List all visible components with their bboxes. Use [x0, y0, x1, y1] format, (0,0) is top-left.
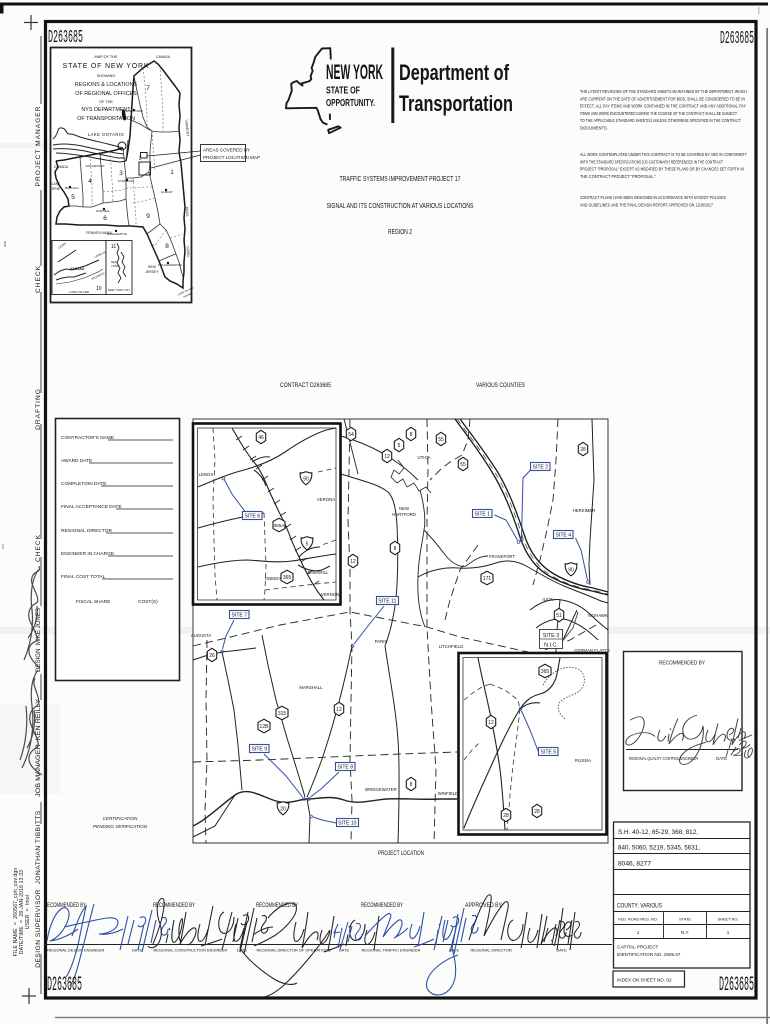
svg-text:SITE 6: SITE 6: [245, 514, 261, 520]
svg-text:8: 8: [410, 432, 413, 438]
svg-text:51: 51: [556, 613, 562, 619]
svg-text:CANADA: CANADA: [54, 165, 69, 169]
svg-text:POUGHKEEPSIE: POUGHKEEPSIE: [158, 263, 182, 267]
svg-text:RECOMMENDED BY: RECOMMENDED BY: [361, 902, 404, 909]
svg-text:COMPLETION DATE: COMPLETION DATE: [61, 481, 107, 487]
svg-text:FINAL COST TOTAL: FINAL COST TOTAL: [61, 574, 106, 580]
svg-text:BUFFALO: BUFFALO: [65, 186, 79, 190]
svg-text:DOCUMENTS.: DOCUMENTS.: [580, 126, 608, 131]
svg-text:TRAFFIC SYSTEMS IMPROVEMENT PR: TRAFFIC SYSTEMS IMPROVEMENT PROJECT 17: [340, 174, 461, 183]
svg-text:COUNTY: VARIOUS: COUNTY: VARIOUS: [617, 903, 662, 910]
svg-text:COST(S): COST(S): [138, 599, 158, 605]
svg-text:DATE: DATE: [716, 756, 727, 761]
svg-text:LAKE ONTARIO: LAKE ONTARIO: [88, 132, 125, 137]
svg-text:55: 55: [438, 437, 444, 443]
svg-text:PENDING VERIFICATION: PENDING VERIFICATION: [93, 824, 148, 829]
svg-text:N.Y.: N.Y.: [681, 930, 689, 935]
svg-text:CONN.: CONN.: [186, 246, 190, 257]
svg-text:54: 54: [348, 432, 354, 438]
svg-text:NEW YORK: NEW YORK: [326, 61, 383, 84]
svg-text:1: 1: [727, 930, 730, 935]
svg-text:PARIS: PARIS: [375, 639, 388, 644]
svg-text:OF TRANSPORTATION: OF TRANSPORTATION: [77, 116, 135, 122]
svg-text:12: 12: [384, 454, 390, 460]
svg-text:NEW YORK CITY: NEW YORK CITY: [108, 288, 130, 292]
svg-text:HARTFORD: HARTFORD: [392, 512, 416, 517]
svg-text:D263685: D263685: [47, 974, 82, 997]
svg-text:EFFECT. ALL PAY ITEMS AND WORK: EFFECT. ALL PAY ITEMS AND WORK CONTAINED…: [580, 104, 747, 109]
svg-text:PROJECT "PROPOSAL" EXCEPT AS M: PROJECT "PROPOSAL" EXCEPT AS MODIFIED BY…: [580, 167, 744, 172]
svg-text:REGIONAL CONSTRUCTION ENGINEER: REGIONAL CONSTRUCTION ENGINEER: [154, 948, 228, 953]
svg-text:5: 5: [306, 541, 309, 547]
svg-text:SHERRILL: SHERRILL: [307, 570, 329, 575]
svg-text:AND GUIDELINES AND THE FINAL D: AND GUIDELINES AND THE FINAL DESIGN REPO…: [580, 202, 713, 207]
svg-text:USER = lmol: USER = lmol: [25, 895, 31, 929]
svg-text:SITE 11: SITE 11: [378, 599, 396, 605]
svg-text:5: 5: [71, 194, 75, 201]
svg-text:WITH THE STANDARD SPECIFICATIO: WITH THE STANDARD SPECIFICATIONS (US CUS…: [580, 159, 723, 164]
svg-text:5: 5: [398, 443, 401, 449]
svg-text:AREAS COVERED BY: AREAS COVERED BY: [203, 148, 250, 153]
svg-text:28: 28: [580, 447, 586, 453]
svg-text:365A: 365A: [274, 523, 286, 528]
svg-text:FRANKFORT: FRANKFORT: [489, 554, 516, 559]
svg-text:4: 4: [88, 178, 92, 185]
svg-text:Transportation: Transportation: [399, 91, 513, 116]
svg-text:REGION 2: REGION 2: [388, 227, 412, 236]
svg-text:CERTIFICATION: CERTIFICATION: [103, 816, 138, 821]
svg-text:ENGINEER IN CHARGE: ENGINEER IN CHARGE: [61, 551, 114, 557]
svg-text:JERSEY: JERSEY: [145, 270, 159, 274]
svg-text:FISCAL SHARE: FISCAL SHARE: [76, 599, 110, 605]
svg-text:REGIONAL QUALITY CONTROL ENGIN: REGIONAL QUALITY CONTROL ENGINEER: [629, 756, 698, 761]
svg-text:REGIONAL DIRECTOR: REGIONAL DIRECTOR: [471, 948, 512, 953]
svg-text:STATE OF NEW YORK: STATE OF NEW YORK: [63, 63, 150, 70]
svg-text:CAPITAL PROJECT: CAPITAL PROJECT: [617, 945, 659, 950]
svg-text:UTICA: UTICA: [418, 455, 431, 460]
svg-text:OPPORTUNITY.: OPPORTUNITY.: [326, 97, 375, 109]
svg-text:D263685: D263685: [719, 974, 754, 997]
svg-text:26: 26: [209, 653, 215, 659]
svg-text:12: 12: [488, 720, 494, 726]
svg-text:ILION: ILION: [542, 597, 553, 602]
svg-text:CHECK: CHECK: [35, 265, 42, 293]
svg-text:VARIOUS COUNTIES: VARIOUS COUNTIES: [476, 382, 525, 389]
svg-text:THE LATEST REVISIONS OF THE ST: THE LATEST REVISIONS OF THE STANDARD SHE…: [580, 89, 747, 94]
svg-text:APPROVED BY: APPROVED BY: [465, 902, 503, 909]
svg-text:REGIONS & LOCATIONS: REGIONS & LOCATIONS: [75, 82, 138, 88]
svg-text:8: 8: [394, 546, 397, 552]
svg-text:ARE CURRENT ON THE DATE OF ADV: ARE CURRENT ON THE DATE OF ADVERTISEMENT…: [580, 96, 745, 101]
svg-text:55: 55: [460, 462, 466, 468]
svg-text:INDEX ON SHEET NO. 02: INDEX ON SHEET NO. 02: [617, 978, 672, 983]
svg-text:CONTRACT PLANS HAVE BEEN DESIG: CONTRACT PLANS HAVE BEEN DESIGNED IN ACC…: [580, 195, 726, 200]
svg-text:365: 365: [541, 669, 550, 675]
svg-text:SITE 1: SITE 1: [475, 512, 491, 518]
svg-text:D263685: D263685: [48, 28, 83, 48]
svg-text:AWARD DATE: AWARD DATE: [61, 458, 92, 464]
svg-text:WINFIELD: WINFIELD: [438, 791, 459, 796]
svg-text:FED. ROAD REG. NO.: FED. ROAD REG. NO.: [618, 917, 658, 922]
svg-text:DRAFTING: DRAFTING: [35, 388, 42, 430]
svg-text:90: 90: [568, 567, 574, 573]
svg-text:NEW: NEW: [399, 506, 410, 511]
svg-text:YORK: YORK: [111, 264, 119, 268]
svg-text:SITE 3: SITE 3: [543, 633, 559, 639]
svg-text:S.H. 40-12, 65-29, 368, 812,: S.H. 40-12, 65-29, 368, 812,: [618, 829, 698, 836]
svg-text:MOHAWK: MOHAWK: [588, 613, 608, 618]
svg-text:10: 10: [96, 286, 102, 292]
svg-text:12B: 12B: [260, 724, 270, 730]
svg-text:90: 90: [303, 476, 309, 482]
svg-text:315: 315: [278, 711, 287, 717]
svg-text:9: 9: [146, 213, 150, 220]
svg-text:VERONA: VERONA: [317, 497, 335, 502]
svg-text:OF THE: OF THE: [99, 100, 113, 104]
svg-text:MAP OF THE: MAP OF THE: [94, 55, 118, 59]
svg-text:840, 5060, 5219, 5345, 5631,: 840, 5060, 5219, 5345, 5631,: [618, 845, 700, 852]
svg-text:THE CONTRACT PROJECT "PROPOSAL: THE CONTRACT PROJECT "PROPOSAL.": [580, 174, 656, 179]
svg-text:DATE: DATE: [557, 948, 567, 953]
svg-text:PROJECT LOCATION: PROJECT LOCATION: [378, 851, 424, 857]
svg-text:PENNSYLVANIA: PENNSYLVANIA: [86, 231, 112, 235]
svg-text:ITEMS AND WORK ENCOUNTERED DUR: ITEMS AND WORK ENCOUNTERED DURING THE CO…: [580, 111, 737, 116]
svg-text:NASSAU: NASSAU: [70, 267, 85, 271]
svg-text:ALL WORK CONTEMPLATED UNDER TH: ALL WORK CONTEMPLATED UNDER THIS CONTRAC…: [580, 152, 748, 157]
svg-text:NEW: NEW: [148, 265, 157, 269]
svg-text:8: 8: [165, 243, 169, 250]
svg-text:Department of: Department of: [399, 60, 509, 85]
svg-text:CHECK: CHECK: [35, 534, 42, 562]
svg-text:SITE 4: SITE 4: [556, 533, 572, 539]
svg-text:SITE 8: SITE 8: [338, 765, 354, 771]
svg-text:11: 11: [111, 244, 116, 250]
svg-text:D263685: D263685: [720, 29, 754, 49]
svg-text:LITCHFIELD: LITCHFIELD: [439, 644, 464, 649]
svg-text:RECOMMENDED BY: RECOMMENDED BY: [153, 902, 196, 909]
svg-text:MARSHALL: MARSHALL: [299, 685, 323, 690]
svg-text:LAKE: LAKE: [52, 182, 61, 186]
svg-text:REGIONAL TRAFFIC ENGINEER: REGIONAL TRAFFIC ENGINEER: [362, 948, 421, 953]
svg-text:7: 7: [146, 85, 150, 92]
svg-text:CONTRACTOR'S NAME: CONTRACTOR'S NAME: [61, 435, 114, 441]
svg-text:STATE: STATE: [679, 917, 691, 922]
svg-text:LONG ISLAND: LONG ISLAND: [69, 290, 90, 294]
svg-text:REGIONAL DIRECTOR: REGIONAL DIRECTOR: [61, 528, 112, 534]
svg-text:ERIE: ERIE: [52, 187, 61, 191]
svg-text:SITE 9: SITE 9: [252, 747, 268, 753]
svg-text:DESIGN SUPERVISOR JONATHAN TI: DESIGN SUPERVISOR JONATHAN TIBBITTS: [35, 810, 42, 968]
svg-text:20: 20: [280, 806, 286, 812]
svg-text:ROCHESTER: ROCHESTER: [86, 164, 106, 168]
svg-text:SHOWING: SHOWING: [97, 74, 116, 78]
svg-text:ONEIDA: ONEIDA: [265, 576, 282, 581]
svg-text:8: 8: [410, 782, 413, 788]
svg-text:RECOMMENDED BY: RECOMMENDED BY: [659, 661, 705, 667]
svg-text:171: 171: [483, 576, 492, 582]
svg-text:SITE 10: SITE 10: [338, 821, 357, 827]
svg-text:SIGNAL AND ITS CONSTRUCTION AT: SIGNAL AND ITS CONSTRUCTION AT VARIOUS L…: [327, 201, 474, 210]
svg-text:DATE: DATE: [132, 948, 142, 953]
svg-text:1: 1: [637, 930, 640, 935]
svg-text:BRIDGEWATER: BRIDGEWATER: [365, 787, 397, 792]
svg-text:CANADA: CANADA: [156, 55, 171, 59]
svg-text:28: 28: [534, 809, 540, 815]
svg-text:12: 12: [350, 559, 356, 565]
svg-text:RUSSIA: RUSSIA: [575, 758, 591, 763]
svg-text:STATE OF: STATE OF: [326, 85, 360, 97]
svg-text:TO THE APPLICABLE STANDARD SHE: TO THE APPLICABLE STANDARD SHEET(S) UNLE…: [580, 118, 741, 123]
svg-text:DESIGN MIKE JONES: DESIGN MIKE JONES: [35, 608, 42, 672]
svg-text:SHEET NO.: SHEET NO.: [718, 917, 739, 922]
svg-text:SITE 7: SITE 7: [232, 613, 248, 619]
svg-text:SITE 2: SITE 2: [533, 465, 549, 471]
svg-text:3: 3: [119, 170, 123, 177]
svg-text:8046, 8277: 8046, 8277: [618, 861, 651, 868]
svg-text:REGIONAL DIRECTOR OF OPERATION: REGIONAL DIRECTOR OF OPERATIONS: [257, 948, 331, 953]
svg-text:N.I.C.: N.I.C.: [544, 643, 558, 649]
svg-text:HERKIMER: HERKIMER: [573, 508, 596, 513]
svg-text:365: 365: [283, 575, 292, 581]
svg-text:LENOX: LENOX: [199, 472, 214, 477]
svg-text:28: 28: [503, 813, 509, 819]
svg-text:IDENTIFICATION NO. 2905.67: IDENTIFICATION NO. 2905.67: [617, 952, 681, 957]
svg-text:6: 6: [103, 215, 107, 222]
svg-text:12: 12: [336, 707, 342, 713]
svg-text:VERNON: VERNON: [321, 592, 339, 597]
svg-text:PROJECT MANAGER: PROJECT MANAGER: [35, 106, 42, 187]
svg-text:FINAL ACCEPTANCE DATE: FINAL ACCEPTANCE DATE: [61, 504, 122, 510]
svg-text:MASS.: MASS.: [185, 207, 189, 218]
svg-text:46: 46: [258, 435, 264, 441]
svg-text:PROJECT LOCATION MAP: PROJECT LOCATION MAP: [203, 155, 260, 160]
svg-text:OF REGIONAL OFFICES: OF REGIONAL OFFICES: [75, 91, 137, 97]
svg-text:AUGUSTA: AUGUSTA: [191, 633, 212, 638]
svg-text:SITE 5: SITE 5: [541, 750, 557, 756]
svg-text:CONTRACT D263685: CONTRACT D263685: [280, 382, 331, 389]
